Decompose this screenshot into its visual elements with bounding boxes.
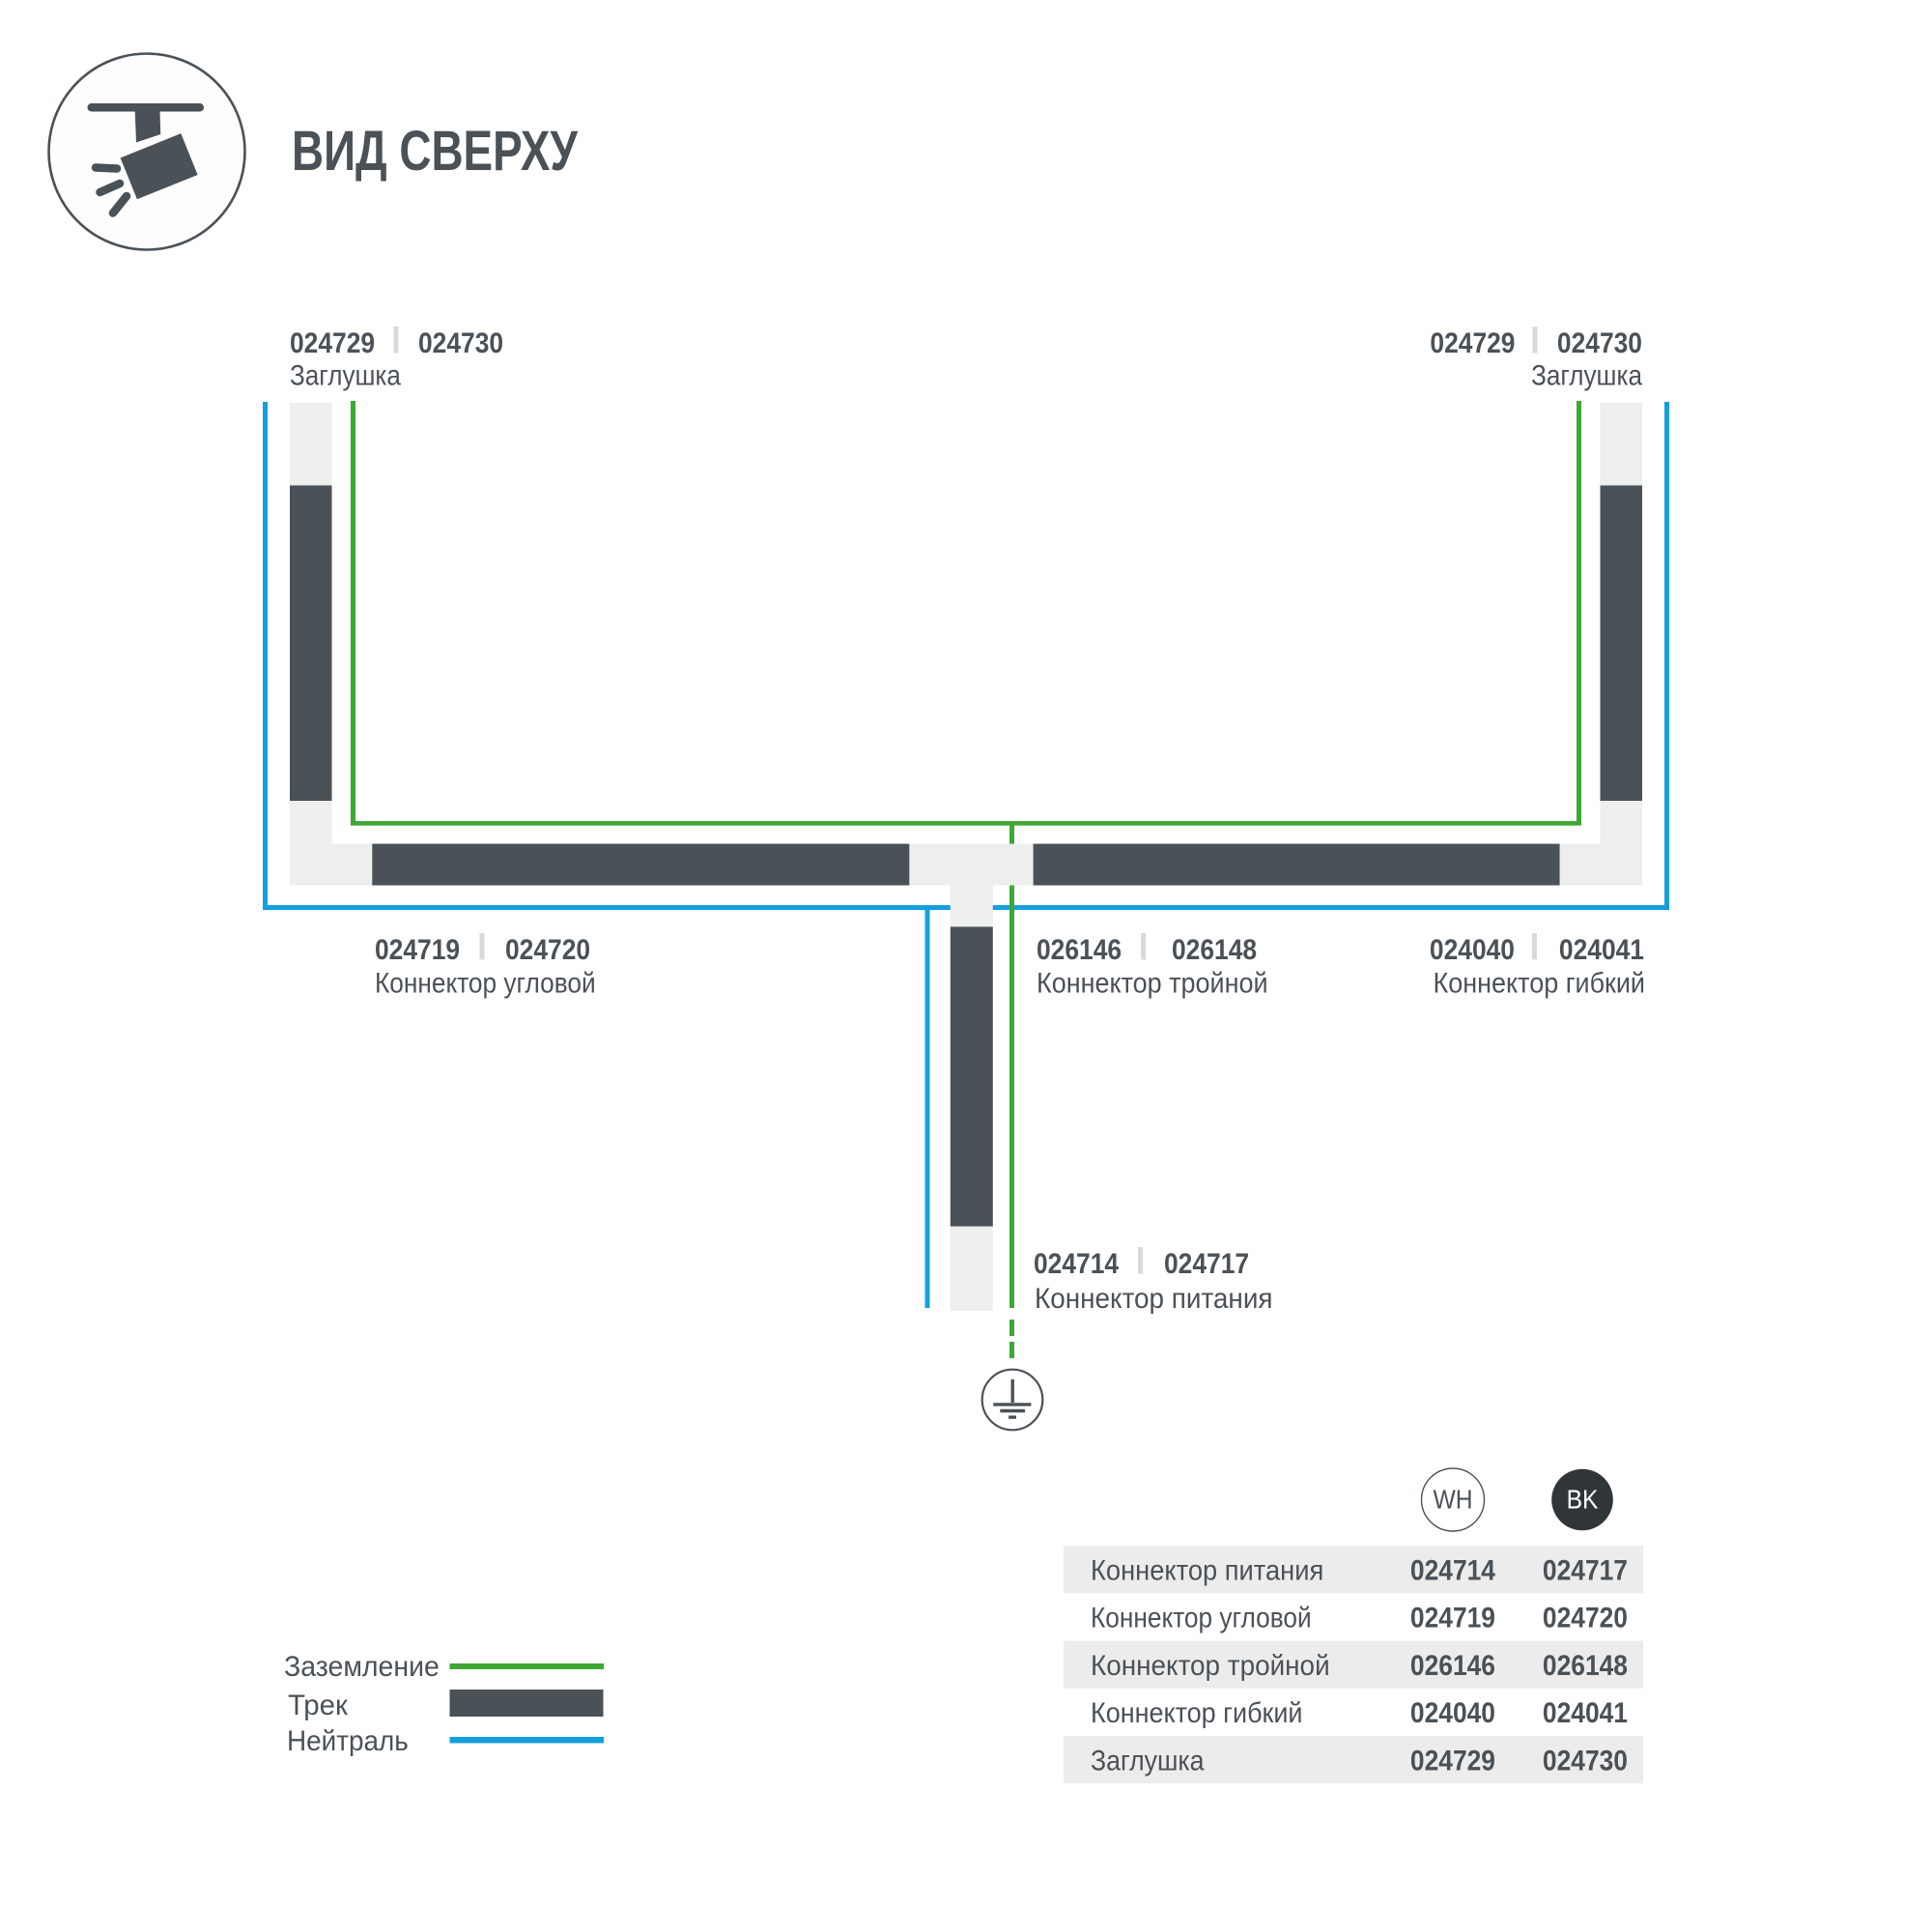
svg-text:024041: 024041 [1559,932,1644,965]
svg-text:Коннектор гибкий: Коннектор гибкий [1434,967,1645,1000]
svg-text:024714: 024714 [1410,1553,1495,1586]
svg-text:ВИД СВЕРХУ: ВИД СВЕРХУ [292,121,578,183]
svg-text:024040: 024040 [1430,932,1515,965]
svg-text:Заглушка: Заглушка [1091,1745,1205,1777]
svg-text:Коннектор питания: Коннектор питания [1035,1283,1273,1315]
svg-text:026148: 026148 [1172,932,1257,965]
svg-text:026148: 026148 [1543,1648,1628,1681]
svg-text:024040: 024040 [1410,1695,1495,1728]
svg-text:Трек: Трек [288,1690,349,1721]
svg-text:024720: 024720 [505,932,590,965]
svg-text:024719: 024719 [375,932,460,965]
svg-text:Коннектор питания: Коннектор питания [1091,1554,1323,1586]
svg-text:024717: 024717 [1164,1246,1249,1279]
svg-text:Коннектор угловой: Коннектор угловой [375,966,596,999]
svg-text:Заглушка: Заглушка [1531,359,1642,391]
svg-text:024729: 024729 [290,326,375,358]
svg-text:Коннектор тройной: Коннектор тройной [1091,1650,1330,1682]
svg-text:Нейтраль: Нейтраль [287,1725,409,1757]
svg-text:024729: 024729 [1430,326,1515,358]
svg-text:024730: 024730 [1557,326,1642,358]
svg-text:Коннектор гибкий: Коннектор гибкий [1091,1697,1302,1730]
svg-text:024729: 024729 [1410,1744,1495,1776]
svg-text:Заземление: Заземление [284,1651,440,1683]
svg-text:024041: 024041 [1543,1695,1628,1728]
svg-text:Коннектор тройной: Коннектор тройной [1037,967,1268,1000]
svg-text:024720: 024720 [1543,1601,1628,1634]
svg-text:024719: 024719 [1410,1601,1495,1634]
svg-text:024714: 024714 [1034,1246,1119,1279]
svg-text:024717: 024717 [1543,1553,1628,1586]
svg-text:BK: BK [1567,1484,1599,1515]
svg-text:Заглушка: Заглушка [290,359,401,391]
svg-text:024730: 024730 [1543,1744,1628,1776]
svg-text:WH: WH [1433,1484,1472,1515]
svg-text:Коннектор угловой: Коннектор угловой [1091,1601,1312,1634]
svg-text:026146: 026146 [1410,1648,1495,1681]
svg-text:024730: 024730 [418,326,503,358]
svg-text:026146: 026146 [1037,932,1122,965]
